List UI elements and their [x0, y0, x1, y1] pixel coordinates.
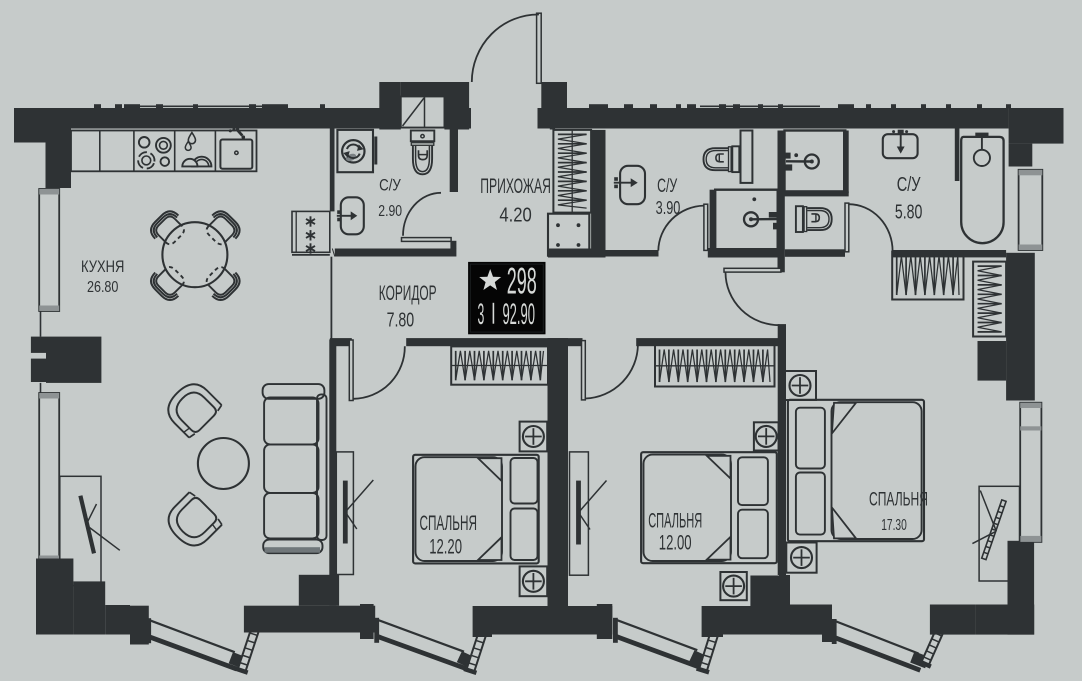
svg-text:КУХНЯ: КУХНЯ [81, 258, 124, 276]
svg-text:4.20: 4.20 [499, 205, 531, 227]
svg-text:СПАЛЬНЯ: СПАЛЬНЯ [869, 489, 928, 511]
svg-text:5.80: 5.80 [895, 201, 923, 223]
svg-text:С/У: С/У [897, 173, 921, 196]
svg-text:298: 298 [507, 261, 537, 302]
svg-text:ПРИХОЖАЯ: ПРИХОЖАЯ [480, 174, 551, 198]
svg-text:2.90: 2.90 [378, 203, 402, 220]
svg-text:26.80: 26.80 [87, 279, 119, 296]
svg-text:СПАЛЬНЯ: СПАЛЬНЯ [648, 509, 702, 532]
svg-text:92.90: 92.90 [502, 298, 535, 331]
svg-text:7.80: 7.80 [387, 310, 415, 332]
svg-text:3: 3 [478, 298, 485, 331]
svg-text:17.30: 17.30 [881, 517, 907, 534]
svg-text:12.00: 12.00 [659, 532, 692, 555]
svg-text:12.20: 12.20 [429, 536, 462, 559]
svg-text:СПАЛЬНЯ: СПАЛЬНЯ [419, 512, 477, 535]
svg-text:3.90: 3.90 [656, 197, 681, 218]
svg-text:С/У: С/У [657, 175, 678, 197]
svg-text:С/У: С/У [379, 176, 401, 195]
svg-text:КОРИДОР: КОРИДОР [379, 282, 437, 305]
